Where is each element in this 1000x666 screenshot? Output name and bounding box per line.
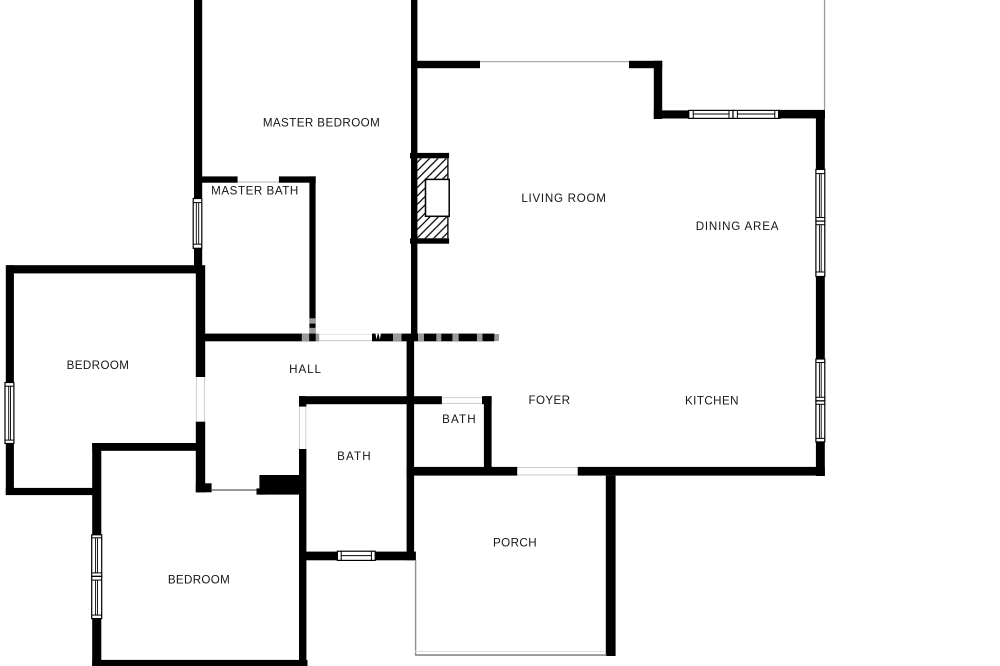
svg-text:HALL: HALL <box>289 363 322 376</box>
svg-text:LIVING ROOM: LIVING ROOM <box>521 192 606 205</box>
svg-text:FOYER: FOYER <box>529 394 571 407</box>
svg-text:MASTER BATH: MASTER BATH <box>211 184 299 197</box>
svg-text:DINING AREA: DINING AREA <box>696 220 780 233</box>
svg-text:PORCH: PORCH <box>493 537 537 550</box>
svg-text:MASTER BEDROOM: MASTER BEDROOM <box>263 116 380 129</box>
svg-text:BATH: BATH <box>442 413 477 426</box>
svg-text:BEDROOM: BEDROOM <box>67 359 130 372</box>
svg-text:BEDROOM: BEDROOM <box>168 573 230 586</box>
svg-text:KITCHEN: KITCHEN <box>685 395 739 408</box>
svg-text:BATH: BATH <box>337 450 372 463</box>
